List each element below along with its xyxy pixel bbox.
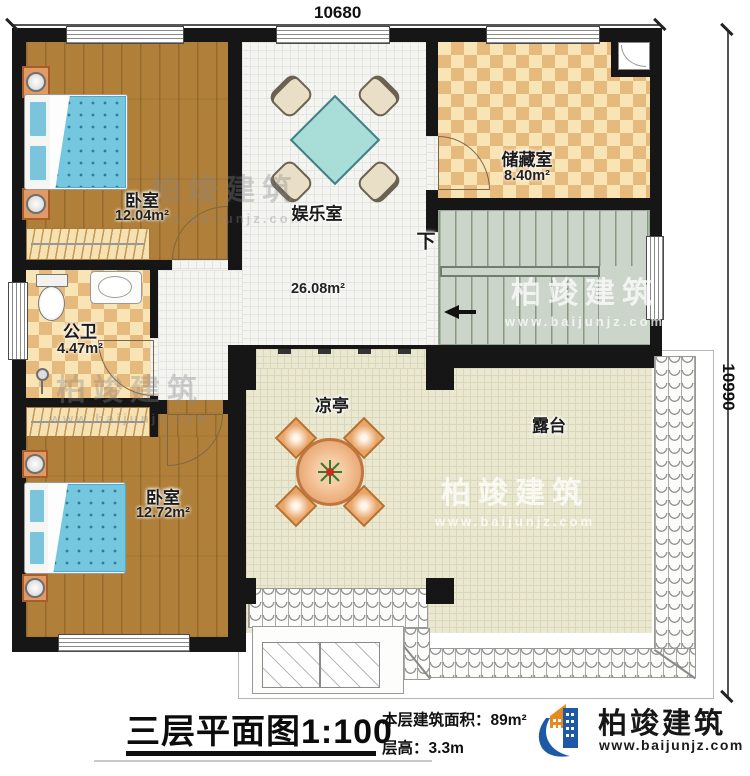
- pillow: [28, 144, 48, 182]
- pavilion-column-bottom-right: [426, 578, 454, 604]
- storage-door-gap: [426, 136, 438, 190]
- pavilion-door-track-tick-2: [318, 349, 331, 354]
- room-label-terrace: 露台: [532, 412, 566, 437]
- nightstand: [22, 188, 50, 220]
- pavilion-pillar-top-right: [426, 368, 454, 390]
- shower-head-icon: [36, 368, 49, 381]
- stair-direction-arrow: [444, 305, 459, 319]
- pavilion-door-track-tick-1: [278, 349, 291, 354]
- stair-railing: [440, 266, 600, 277]
- wardrobe-bedroom-top: [26, 228, 150, 260]
- window-storage: [486, 26, 600, 44]
- plan-title-text: 三层平面图: [126, 713, 301, 751]
- window-stair: [646, 236, 664, 320]
- window-bedroom-top: [66, 26, 184, 44]
- bedroom-top-door-gap: [172, 260, 228, 270]
- lamp-icon: [25, 454, 45, 474]
- pavilion-eave-tiles: [248, 588, 428, 628]
- title-underline-light: [94, 760, 432, 762]
- pavilion-pillar-top-left: [246, 345, 256, 390]
- lamp-icon: [26, 72, 46, 92]
- room-label-bathroom: 公卫: [63, 318, 97, 343]
- brand-logo-icon: [532, 696, 594, 760]
- pillow: [28, 488, 46, 524]
- plan-scale: 1:100: [301, 713, 393, 751]
- floor-area-label: 本层建筑面积：: [382, 712, 491, 729]
- floor-area-line: 本层建筑面积：89m²: [382, 708, 527, 730]
- pavilion-door-track-tick-4: [398, 349, 411, 354]
- storage-niche-wall-h: [611, 70, 650, 77]
- nightstand: [22, 574, 48, 602]
- room-area-bedroom-top: 12.04m²: [115, 208, 169, 224]
- pillow: [28, 530, 46, 566]
- plant-icon: [312, 454, 348, 490]
- dimension-right-value: 10990: [718, 346, 738, 428]
- room-label-storage: 储藏室: [502, 146, 553, 171]
- terrace-roof-tiles-bottom: [428, 648, 696, 678]
- stair-down-label: 下: [416, 227, 435, 254]
- pavilion-door-track-tick-3: [358, 349, 371, 354]
- floor-height-line: 层高：3.3m: [382, 736, 464, 758]
- dimension-top-value: 10680: [308, 3, 367, 23]
- hall-floor-1: [158, 270, 242, 345]
- toilet-bowl-icon: [38, 286, 65, 321]
- pillow: [28, 100, 48, 138]
- nightstand: [22, 450, 48, 478]
- dormer-skylight-left: [262, 642, 320, 688]
- stair-landing: [598, 266, 650, 344]
- floor-plan-canvas: 柏竣建筑 www.baijunjz.com 柏竣建筑 www.baijunjz.…: [0, 0, 750, 776]
- logo-tower: [563, 708, 578, 748]
- lamp-icon: [25, 578, 45, 598]
- stair-arrow-tail: [458, 310, 476, 314]
- brand-name: 柏竣建筑: [598, 700, 726, 742]
- brand-website: www.baijunjz.com: [599, 737, 744, 753]
- plan-title: 三层平面图1:100: [126, 704, 393, 753]
- room-area-entertainment: 26.08m²: [291, 281, 345, 297]
- room-area-bedroom-bottom: 12.72m²: [136, 505, 190, 521]
- room-label-entertainment: 娱乐室: [292, 200, 343, 225]
- terrace-roof-tiles-right: [654, 356, 696, 678]
- hall-floor-2: [158, 345, 228, 400]
- title-underline: [126, 751, 376, 756]
- bedroom-bottom-door-gap: [167, 400, 223, 414]
- floor-height-label: 层高：: [382, 740, 429, 757]
- pavilion-column-bottom-left: [246, 578, 256, 604]
- room-area-bathroom: 4.47m²: [57, 341, 103, 357]
- room-area-storage: 8.40m²: [504, 168, 550, 184]
- floor-area-value: 89m²: [491, 712, 527, 729]
- window-entertainment: [276, 26, 390, 44]
- window-bathroom: [8, 282, 28, 360]
- wardrobe-bedroom-bottom: [26, 407, 150, 437]
- lamp-icon: [26, 194, 46, 214]
- room-label-pavilion: 凉亭: [315, 392, 349, 417]
- window-bedroom-bottom: [58, 634, 190, 652]
- dormer-skylight-right: [320, 642, 380, 688]
- entertainment-floor: [242, 42, 426, 345]
- sink-basin-icon: [98, 276, 132, 298]
- floor-height-value: 3.3m: [429, 740, 464, 757]
- shower-stem: [41, 381, 43, 394]
- dimension-line-top: [12, 24, 660, 26]
